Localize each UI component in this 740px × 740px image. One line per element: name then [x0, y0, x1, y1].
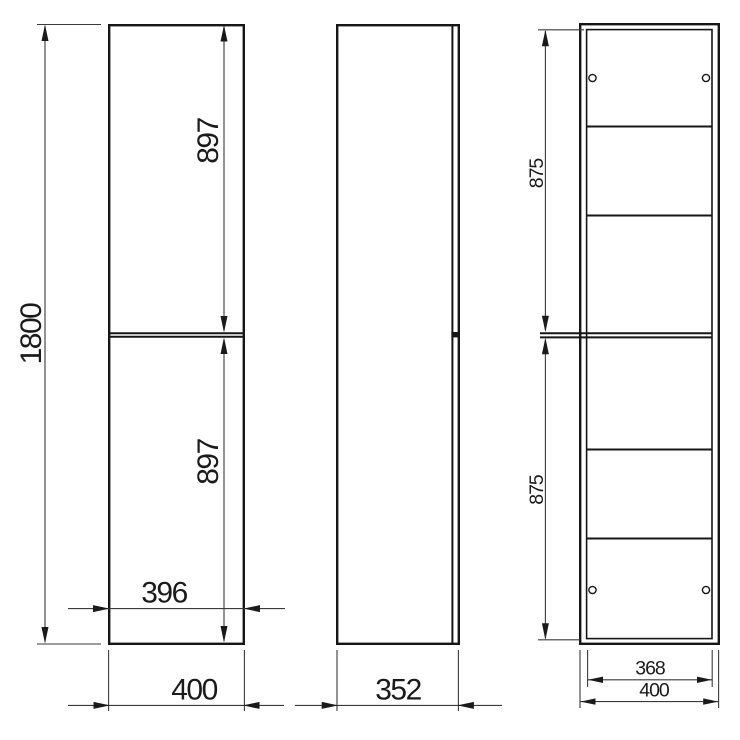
dimension-overall-height: 1800: [15, 25, 101, 645]
cabinet-technical-drawing: 1800 897 897 396: [0, 0, 740, 740]
dimension-depth: 352: [295, 650, 502, 711]
front-view: 1800 897 897 396: [15, 25, 285, 712]
arrowhead-right: [94, 702, 111, 709]
dimension-lower-cavity: 875: [526, 338, 580, 640]
arrowhead-left: [581, 698, 596, 704]
dimension-front-overall-width: 400: [68, 650, 284, 711]
dimension-label-875-lower: 875: [526, 474, 548, 505]
arrowhead-down: [542, 316, 549, 333]
dimension-door-width: 396: [68, 577, 285, 613]
arrowhead-right: [697, 677, 712, 683]
side-view: 352: [295, 25, 502, 711]
arrowhead-up: [542, 30, 549, 47]
arrowhead-down: [42, 627, 49, 644]
dimension-upper-cavity: 875: [526, 30, 584, 332]
arrowhead-left: [588, 677, 603, 683]
section-view: 875 875 368 400: [526, 24, 719, 708]
mounting-hole: [702, 586, 709, 593]
arrowhead-right: [322, 702, 339, 709]
dimension-label-1800: 1800: [15, 303, 48, 365]
dimension-label-396: 396: [141, 577, 187, 610]
door-gap-mark: [451, 332, 459, 337]
arrowhead-left: [243, 702, 260, 709]
dimension-label-875-upper: 875: [526, 158, 548, 189]
arrowhead-right: [703, 698, 718, 704]
arrowhead-down: [542, 623, 549, 640]
arrowhead-up: [42, 25, 49, 42]
side-view-outline: [337, 25, 459, 644]
drawing-canvas: 1800 897 897 396: [0, 0, 740, 740]
dimension-label-400-front: 400: [171, 674, 217, 707]
arrowhead-up: [542, 338, 549, 355]
dimension-label-400-section: 400: [639, 680, 670, 702]
dimension-label-352: 352: [375, 674, 421, 707]
dimension-label-368: 368: [635, 658, 665, 680]
mounting-hole: [589, 586, 596, 593]
dimension-label-897-upper: 897: [192, 117, 225, 163]
arrowhead-left: [457, 702, 474, 709]
arrowhead-left: [244, 605, 261, 612]
dimension-label-897-lower: 897: [192, 438, 225, 484]
mounting-hole: [702, 74, 709, 81]
arrowhead-right: [93, 605, 110, 612]
mounting-hole: [589, 74, 596, 81]
